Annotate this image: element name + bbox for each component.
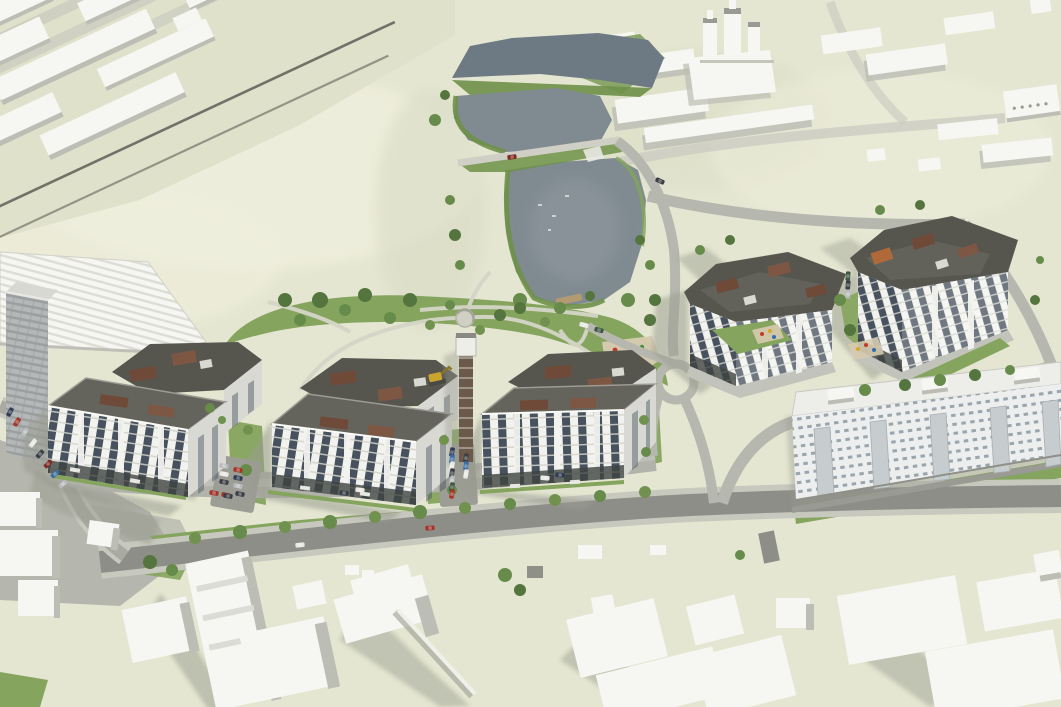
construction-tower <box>459 350 473 462</box>
masterplan-rendering <box>0 0 1061 707</box>
rendering-canvas <box>0 0 1061 707</box>
